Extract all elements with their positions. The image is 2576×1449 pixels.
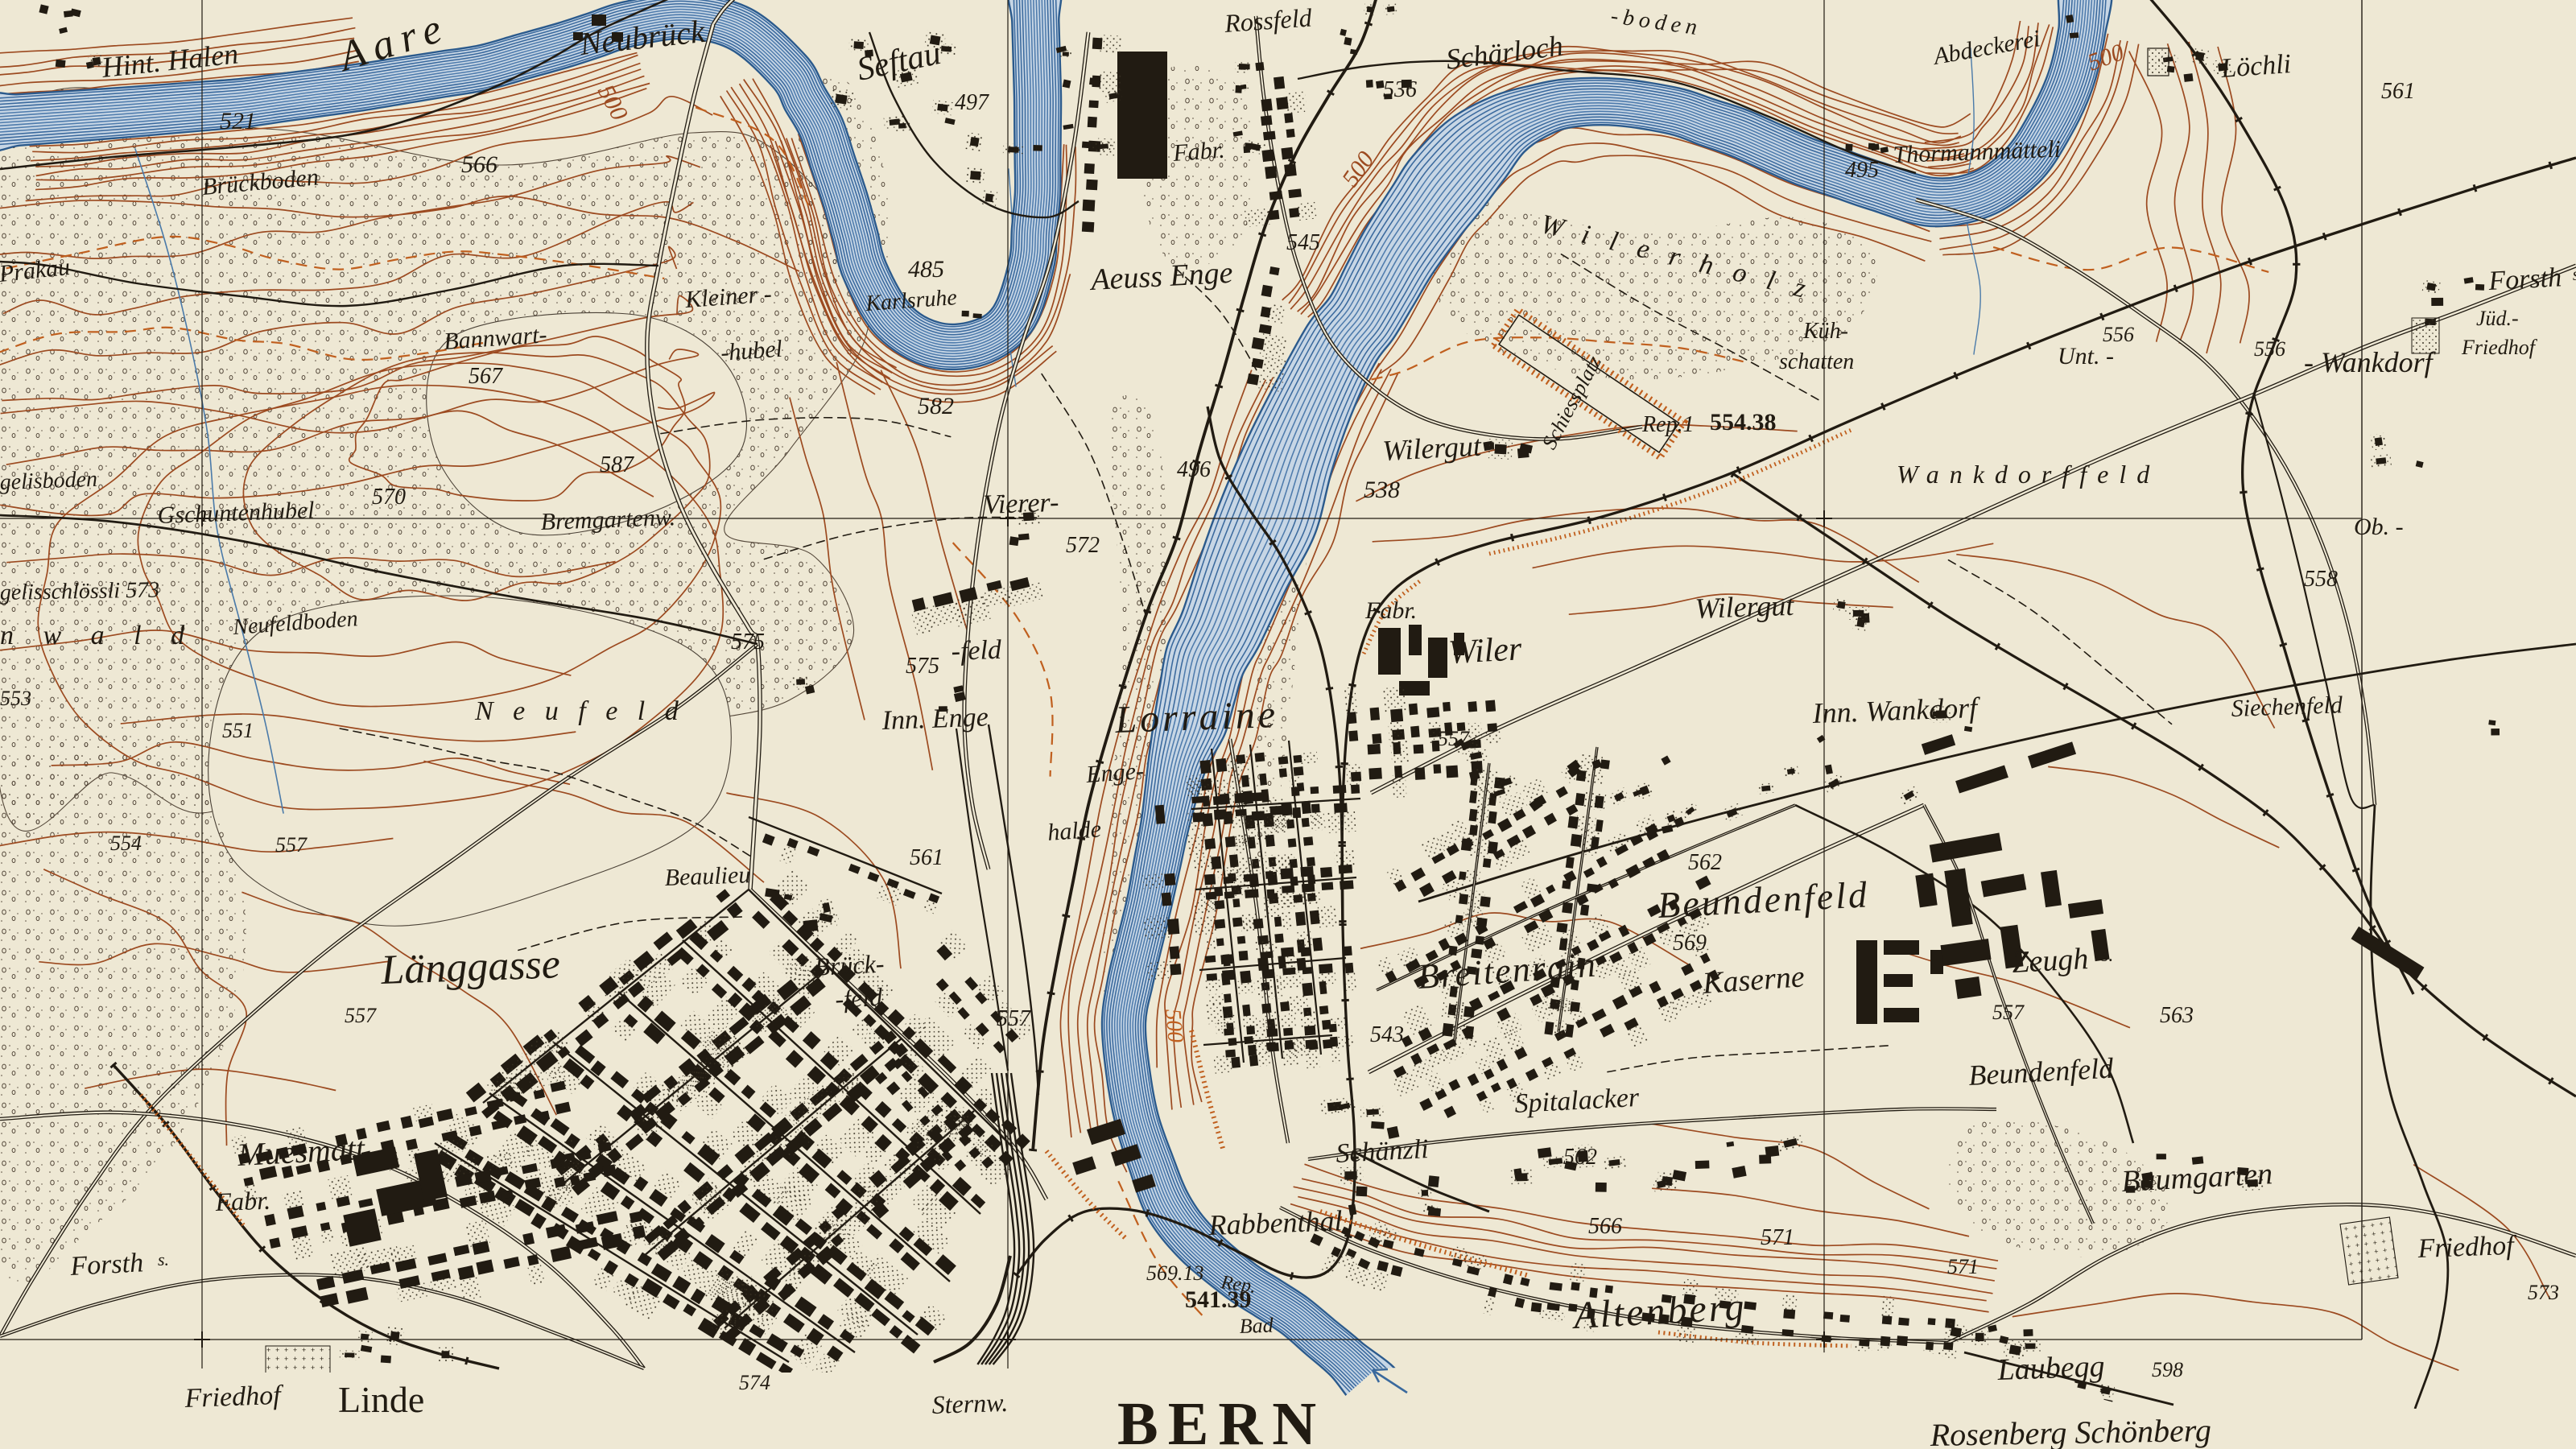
svg-text:575: 575 <box>906 654 939 679</box>
svg-text:Unt. -: Unt. - <box>2058 343 2114 369</box>
svg-text:497: 497 <box>955 90 989 115</box>
svg-text:-feld: -feld <box>951 635 1003 667</box>
svg-text:-feld: -feld <box>834 982 883 1013</box>
svg-text:Siechenfeld: Siechenfeld <box>2231 691 2343 722</box>
svg-text:574: 574 <box>739 1371 770 1394</box>
svg-text:- Wankdorf: - Wankdorf <box>2304 346 2437 378</box>
svg-text:Friedhof: Friedhof <box>2417 1231 2518 1264</box>
svg-text:500: 500 <box>1160 1008 1188 1044</box>
svg-text:561: 561 <box>910 845 943 870</box>
svg-text:halde: halde <box>1046 815 1102 846</box>
svg-text:566: 566 <box>461 151 497 178</box>
svg-text:Jüd.-: Jüd.- <box>2476 307 2519 330</box>
svg-text:Rep.1: Rep.1 <box>1641 412 1695 437</box>
svg-text:s.: s. <box>158 1249 169 1269</box>
svg-text:N e u f e l d: N e u f e l d <box>474 696 685 726</box>
svg-text:Laubegg: Laubegg <box>1996 1349 2105 1387</box>
svg-text:598: 598 <box>2152 1358 2183 1381</box>
svg-text:Wilergut: Wilergut <box>1695 589 1795 625</box>
svg-text:496: 496 <box>1177 457 1211 482</box>
svg-text:558: 558 <box>2304 567 2338 592</box>
svg-text:557: 557 <box>997 1006 1031 1031</box>
svg-text:571: 571 <box>1947 1255 1979 1278</box>
svg-text:566: 566 <box>1588 1214 1622 1239</box>
svg-text:Wiler: Wiler <box>1447 630 1523 671</box>
svg-text:541.39: 541.39 <box>1185 1286 1252 1313</box>
svg-text:Bremgartenw.: Bremgartenw. <box>540 504 676 535</box>
svg-text:556: 556 <box>2254 337 2285 361</box>
svg-text:Friedhof: Friedhof <box>184 1381 285 1414</box>
svg-text:Brück-: Brück- <box>813 948 885 981</box>
svg-text:BERN: BERN <box>1117 1390 1326 1449</box>
svg-text:536: 536 <box>1383 77 1417 102</box>
svg-text:570: 570 <box>372 485 406 510</box>
svg-text:Inn. Wankdorf: Inn. Wankdorf <box>1811 691 1982 729</box>
svg-text:Fabr.: Fabr. <box>1364 597 1417 624</box>
svg-text:Gschuntenhubel: Gschuntenhubel <box>157 497 315 529</box>
svg-text:575: 575 <box>731 630 765 654</box>
svg-text:551: 551 <box>222 719 254 742</box>
svg-text:Linde: Linde <box>338 1379 424 1420</box>
svg-text:538: 538 <box>1364 477 1400 503</box>
svg-text:Beaulieu: Beaulieu <box>664 861 751 891</box>
svg-text:gelisschlössli 573: gelisschlössli 573 <box>0 578 159 605</box>
svg-text:562: 562 <box>1563 1145 1597 1170</box>
svg-text:Inn. Enge: Inn. Enge <box>881 702 989 736</box>
svg-text:557: 557 <box>1438 727 1470 750</box>
svg-text:571: 571 <box>1761 1225 1794 1250</box>
svg-text:557: 557 <box>275 833 308 857</box>
svg-text:Vierer-: Vierer- <box>983 488 1059 520</box>
svg-text:573: 573 <box>2528 1281 2559 1304</box>
svg-text:Fabr.: Fabr. <box>1171 137 1225 167</box>
svg-text:Schänzli: Schänzli <box>1335 1134 1429 1169</box>
svg-text:Bad: Bad <box>1239 1314 1274 1338</box>
svg-text:543: 543 <box>1370 1022 1404 1047</box>
svg-text:Löchli: Löchli <box>2219 49 2292 84</box>
svg-text:572: 572 <box>1066 533 1100 558</box>
svg-text:485: 485 <box>908 256 944 283</box>
svg-text:521: 521 <box>220 108 256 134</box>
svg-text:schatten: schatten <box>1779 349 1854 374</box>
svg-text:Fabr.: Fabr. <box>214 1186 271 1216</box>
svg-text:Küh-: Küh- <box>1802 319 1848 344</box>
svg-text:554: 554 <box>110 832 142 855</box>
svg-text:Rosenberg Schönberg: Rosenberg Schönberg <box>1929 1412 2211 1449</box>
svg-text:Rabbenthal: Rabbenthal <box>1207 1204 1343 1241</box>
svg-text:563: 563 <box>2160 1003 2194 1028</box>
svg-text:Wankdorffeld: Wankdorffeld <box>1897 460 2160 489</box>
svg-text:553: 553 <box>0 687 31 710</box>
svg-text:Friedhof: Friedhof <box>2461 336 2538 359</box>
svg-text:s.: s. <box>2572 263 2576 284</box>
svg-text:557: 557 <box>1992 1001 2025 1024</box>
svg-text:556: 556 <box>2103 323 2134 346</box>
svg-text:Kaserne: Kaserne <box>1701 960 1806 1001</box>
svg-text:n w a l d: n w a l d <box>0 621 196 650</box>
svg-text:Ob. -: Ob. - <box>2354 514 2404 540</box>
svg-text:554.38: 554.38 <box>1710 409 1777 436</box>
svg-text:s.: s. <box>2101 945 2113 966</box>
svg-text:561: 561 <box>2381 79 2415 104</box>
svg-text:Sternw.: Sternw. <box>931 1388 1009 1419</box>
svg-text:557: 557 <box>345 1004 377 1027</box>
svg-text:582: 582 <box>918 393 954 419</box>
svg-text:Forsth: Forsth <box>68 1248 143 1282</box>
svg-text:545: 545 <box>1286 230 1320 255</box>
svg-text:Lorraine: Lorraine <box>1114 693 1279 741</box>
svg-text:567: 567 <box>469 364 503 389</box>
svg-text:Wilergut: Wilergut <box>1381 430 1483 467</box>
svg-text:-hubel: -hubel <box>720 336 783 366</box>
svg-text:Rossfeld: Rossfeld <box>1223 2 1314 38</box>
svg-text:Länggasse: Länggasse <box>379 941 560 993</box>
svg-text:562: 562 <box>1688 850 1722 875</box>
svg-text:569: 569 <box>1673 931 1707 956</box>
svg-text:587: 587 <box>600 452 634 477</box>
svg-text:Forsth: Forsth <box>2487 262 2562 296</box>
svg-text:495: 495 <box>1845 158 1879 183</box>
svg-text:569.13: 569.13 <box>1146 1261 1204 1285</box>
svg-text:gelisboden: gelisboden <box>0 467 97 495</box>
svg-text:Zeugh: Zeugh <box>2011 942 2089 980</box>
svg-text:Enge-: Enge- <box>1084 758 1145 788</box>
svg-text:Muesmatt: Muesmatt <box>236 1130 366 1173</box>
